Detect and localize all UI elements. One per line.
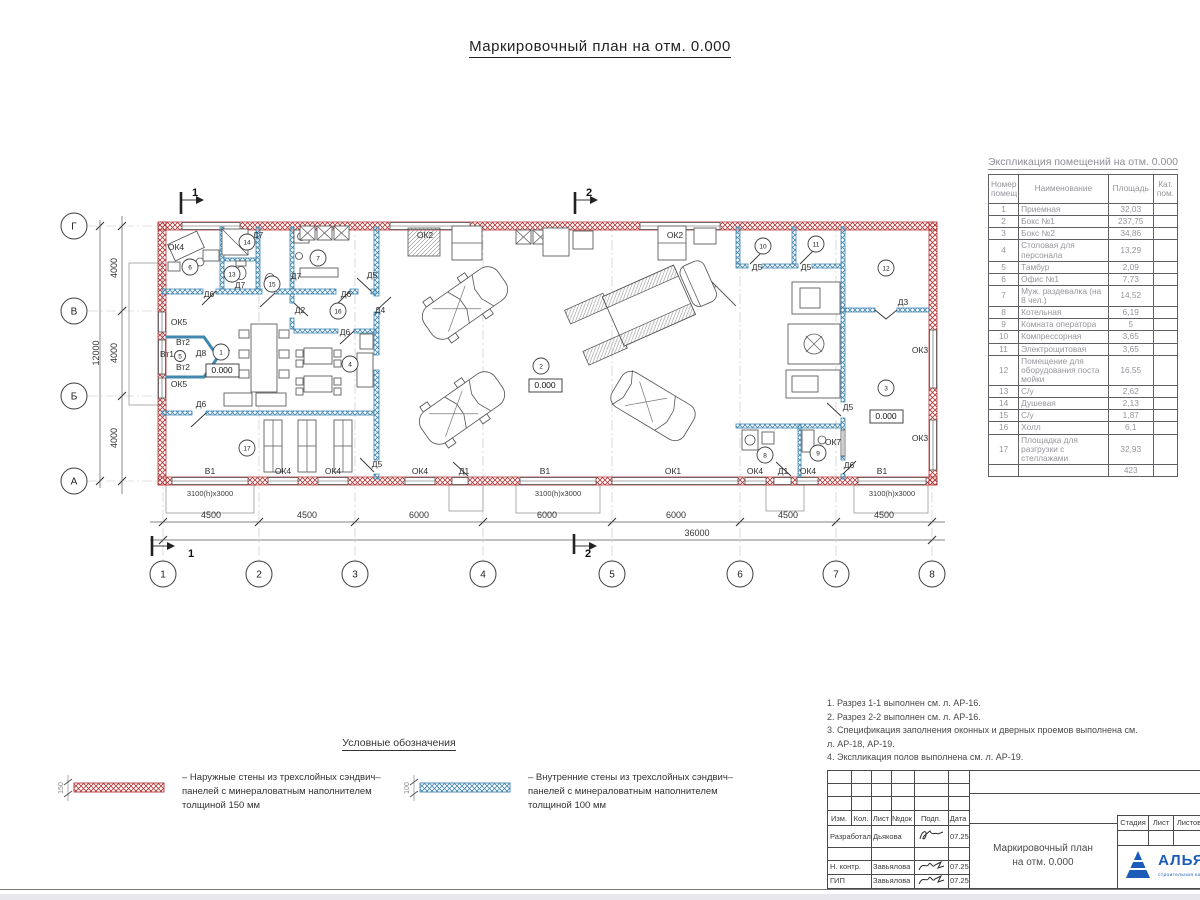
axis-label: 6 bbox=[737, 570, 743, 581]
sheet-edge bbox=[0, 894, 1200, 900]
opening-label: ОК4 bbox=[275, 466, 292, 476]
axis-label: 3 bbox=[352, 570, 358, 581]
tb-col-izm: Изм. bbox=[831, 814, 847, 823]
axis-label: Б bbox=[71, 392, 78, 403]
opening-label: Д5 bbox=[367, 270, 378, 280]
opening-label: Д6 bbox=[341, 289, 352, 299]
opening-label: Д6 bbox=[196, 399, 207, 409]
note-line: 2. Разрез 2-2 выполнен см. л. АР-16. bbox=[827, 711, 1147, 725]
axis-label: А bbox=[71, 477, 78, 488]
tb-col-data: Дата bbox=[950, 814, 967, 823]
schedule-row: 12Помещение для оборудования поста мойки… bbox=[989, 355, 1178, 385]
room-number: 16 bbox=[334, 308, 342, 315]
schedule-row: 9Комната оператора5 bbox=[989, 319, 1178, 331]
opening-label: Д1 bbox=[778, 466, 789, 476]
opening-label: ОК1 bbox=[665, 466, 682, 476]
opening-label: В1 bbox=[540, 466, 551, 476]
section-label: 1 bbox=[188, 548, 194, 560]
schedule-row: 1Приемная32,03 bbox=[989, 204, 1178, 216]
schedule-row: 2Бокс №1237,75 bbox=[989, 216, 1178, 228]
dimension-label: 4500 bbox=[297, 510, 317, 520]
opening-label: 0.000 bbox=[534, 380, 556, 390]
schedule-row: 16Холл6,1 bbox=[989, 422, 1178, 434]
room-number: 5 bbox=[178, 353, 182, 360]
tb-name-developer: Дьякова bbox=[873, 832, 902, 841]
tb-date-gip: 07.25 bbox=[950, 876, 969, 885]
schedule-row: 5Тамбур2,09 bbox=[989, 261, 1178, 273]
col-header-area: Площадь bbox=[1108, 175, 1153, 204]
opening-label: Вт2 bbox=[176, 362, 190, 372]
schedule-row: 7Муж. раздевалка (на 8 чел.)14,52 bbox=[989, 285, 1178, 306]
dimension-label: 4500 bbox=[778, 510, 798, 520]
schedule-row: 14Душевая2,13 bbox=[989, 398, 1178, 410]
tb-role-gip: ГИП bbox=[830, 876, 845, 885]
opening-label: Вт2 bbox=[176, 337, 190, 347]
opening-label: Д7 bbox=[291, 271, 302, 281]
opening-label: Д2 bbox=[295, 305, 306, 315]
schedule-total-row: 423 bbox=[989, 464, 1178, 476]
opening-label: ОК2 bbox=[667, 230, 684, 240]
tb-name-gip: Завьялова bbox=[873, 876, 910, 885]
schedule-row: 8Котельная6,19 bbox=[989, 307, 1178, 319]
opening-label: ОК2 bbox=[417, 230, 434, 240]
opening-label: Д5 bbox=[372, 459, 383, 469]
tb-col-ndok: №док bbox=[892, 814, 912, 823]
dimension-label: 6000 bbox=[409, 510, 429, 520]
opening-label: Д6 bbox=[204, 289, 215, 299]
col-header-num: Номер помещ. bbox=[989, 175, 1019, 204]
axis-label: Г bbox=[71, 222, 77, 233]
opening-label: Д1 bbox=[459, 466, 470, 476]
drawing-sheet: { "title": "Маркировочный план на отм. 0… bbox=[0, 0, 1200, 900]
opening-label: Д6 bbox=[844, 460, 855, 470]
dimension-label: 4000 bbox=[109, 258, 119, 278]
dimension-label: 4500 bbox=[201, 510, 221, 520]
opening-label: 3100(h)x3000 bbox=[535, 489, 581, 498]
schedule-body: 1Приемная32,032Бокс №1237,753Бокс №234,8… bbox=[989, 204, 1178, 465]
axis-label: 4 bbox=[480, 570, 486, 581]
room-number: 9 bbox=[816, 450, 820, 457]
tb-col-kol: Кол. bbox=[854, 814, 869, 823]
legend-outer-wall-text: – Наружные стены из трехслойных сэндвич–… bbox=[182, 771, 417, 812]
signature-developer bbox=[917, 827, 947, 843]
axis-label: В bbox=[71, 307, 78, 318]
company-name: АЛЬЯНС bbox=[1158, 852, 1200, 869]
legend-title: Условные обозначения bbox=[314, 737, 484, 749]
col-header-name: Наименование bbox=[1019, 175, 1108, 204]
opening-label: 0.000 bbox=[211, 365, 233, 375]
signature-gip bbox=[917, 873, 947, 889]
opening-label: ОК4 bbox=[412, 466, 429, 476]
opening-label: Д8 bbox=[196, 348, 207, 358]
schedule-row: 10Компрессорная3,65 bbox=[989, 331, 1178, 343]
room-number: 1 bbox=[219, 349, 223, 356]
room-number: 12 bbox=[882, 265, 890, 272]
opening-label: ОК3 bbox=[912, 345, 929, 355]
tb-col-podp: Подп. bbox=[921, 814, 941, 823]
outer-wall-swatch: 150 bbox=[56, 771, 174, 805]
axis-label: 5 bbox=[609, 570, 615, 581]
tb-date-developer: 07.25 bbox=[950, 832, 969, 841]
dimension-label: 4000 bbox=[109, 343, 119, 363]
opening-label: ОК4 bbox=[800, 466, 817, 476]
section-label: 1 bbox=[192, 187, 198, 199]
notes: 1. Разрез 1-1 выполнен см. л. АР-16.2. Р… bbox=[827, 697, 1147, 765]
opening-label: Д4 bbox=[375, 305, 386, 315]
room-schedule: Экспликация помещений на отм. 0.000 Номе… bbox=[988, 156, 1184, 477]
col-header-cat: Кат. пом. bbox=[1153, 175, 1177, 204]
inner-wall-swatch: 100 bbox=[402, 771, 520, 805]
opening-label: ОК5 bbox=[171, 317, 188, 327]
note-line: 3. Спецификация заполнения оконных и две… bbox=[827, 724, 1147, 751]
tb-sheet: Лист bbox=[1153, 818, 1169, 827]
room-number: 15 bbox=[268, 281, 276, 288]
schedule-row: 13С/у2,62 bbox=[989, 386, 1178, 398]
room-number: 13 bbox=[228, 271, 236, 278]
tb-date-ncontr: 07.25 bbox=[950, 862, 969, 871]
title-block: Изм. Кол. Лист №док Подп. Дата Разработа… bbox=[827, 770, 1200, 889]
schedule-row: 11Электрощитовая3,65 bbox=[989, 343, 1178, 355]
section-label: 2 bbox=[586, 187, 592, 199]
schedule-title: Экспликация помещений на отм. 0.000 bbox=[988, 156, 1184, 168]
document-title: Маркировочный план на отм. 0.000 bbox=[969, 842, 1117, 869]
axis-label: 2 bbox=[256, 570, 262, 581]
company-subtitle: строительная компания bbox=[1158, 873, 1200, 878]
opening-label: ОК4 bbox=[168, 242, 185, 252]
schedule-row: 6Офис №17,73 bbox=[989, 273, 1178, 285]
tb-name-ncontr: Завьялова bbox=[873, 862, 910, 871]
axis-label: 1 bbox=[160, 570, 166, 581]
schedule-row: 4Столовая для персонала13,29 bbox=[989, 240, 1178, 261]
legend-item-outer-wall: 150 – Наружные стены из трехслойных сэнд… bbox=[56, 771, 417, 812]
opening-label: Д5 bbox=[801, 262, 812, 272]
legend-item-inner-wall: 100 – Внутренние стены из трехслойных сэ… bbox=[402, 771, 763, 812]
opening-label: Д7 bbox=[235, 280, 246, 290]
opening-label: В1 bbox=[205, 466, 216, 476]
svg-text:100: 100 bbox=[404, 782, 411, 794]
opening-label: ОК4 bbox=[325, 466, 342, 476]
dimension-label: 36000 bbox=[684, 528, 709, 538]
opening-label: ОК7 bbox=[825, 437, 842, 447]
axis-label: 8 bbox=[929, 570, 935, 581]
section-label: 2 bbox=[585, 548, 591, 560]
room-number: 2 bbox=[539, 363, 543, 370]
opening-label: Д3 bbox=[898, 297, 909, 307]
room-number: 6 bbox=[188, 264, 192, 271]
opening-label: 3100(h)x3000 bbox=[869, 489, 915, 498]
legend-inner-wall-text: – Внутренние стены из трехслойных сэндви… bbox=[528, 771, 763, 812]
company-logo: АЛЬЯНС строительная компания bbox=[1125, 850, 1200, 880]
tb-role-developer: Разработал bbox=[830, 832, 871, 841]
tb-role-ncontr: Н. контр. bbox=[830, 862, 861, 871]
axis-label: 7 bbox=[833, 570, 839, 581]
room-number: 4 bbox=[348, 361, 352, 368]
opening-label: Д5 bbox=[752, 262, 763, 272]
schedule-row: 3Бокс №234,86 bbox=[989, 228, 1178, 240]
logo-triangle-icon bbox=[1125, 850, 1151, 880]
schedule-row: 15С/у1,87 bbox=[989, 410, 1178, 422]
opening-label: ОК5 bbox=[171, 379, 188, 389]
vehicles bbox=[411, 251, 723, 454]
note-line: 1. Разрез 1-1 выполнен см. л. АР-16. bbox=[827, 697, 1147, 711]
schedule-row: 17Площадка для разгрузки с стеллажами32,… bbox=[989, 434, 1178, 464]
room-number: 7 bbox=[316, 255, 320, 262]
room-number: 3 bbox=[884, 385, 888, 392]
opening-label: Д6 bbox=[340, 327, 351, 337]
dimension-label: 6000 bbox=[666, 510, 686, 520]
room-number: 11 bbox=[813, 241, 820, 248]
room-number: 17 bbox=[243, 445, 251, 452]
opening-label: ОК3 bbox=[912, 433, 929, 443]
opening-label: В1 bbox=[877, 466, 888, 476]
dimension-label: 12000 bbox=[91, 340, 101, 365]
tb-sheets: Листов bbox=[1177, 818, 1200, 827]
sheet-frame-line bbox=[0, 889, 1200, 890]
note-line: 4. Экспликация полов выполнена см. л. АР… bbox=[827, 751, 1147, 765]
room-number: 8 bbox=[763, 452, 767, 459]
opening-label: 0.000 bbox=[875, 411, 897, 421]
opening-label: ОК4 bbox=[747, 466, 764, 476]
dimension-label: 4000 bbox=[109, 428, 119, 448]
schedule-table: Номер помещ. Наименование Площадь Кат. п… bbox=[988, 174, 1178, 477]
room-number: 10 bbox=[759, 243, 767, 250]
opening-label: Вт1 bbox=[160, 349, 174, 359]
tb-stage: Стадия bbox=[1120, 818, 1146, 827]
room-number: 14 bbox=[243, 239, 251, 246]
total-area: 423 bbox=[1108, 464, 1153, 476]
tb-col-list: Лист bbox=[873, 814, 889, 823]
opening-label: Д5 bbox=[843, 402, 854, 412]
opening-label: 3100(h)x3000 bbox=[187, 489, 233, 498]
dimension-label: 6000 bbox=[537, 510, 557, 520]
svg-text:150: 150 bbox=[58, 782, 65, 794]
dimension-label: 4500 bbox=[874, 510, 894, 520]
